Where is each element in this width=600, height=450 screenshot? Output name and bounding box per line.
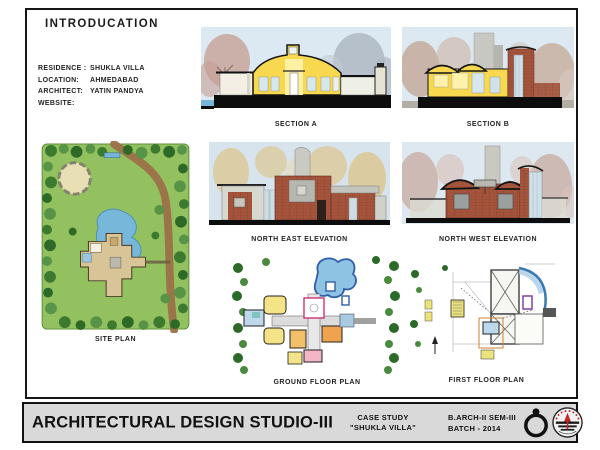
case-study-line1: CASE STUDY — [340, 413, 426, 423]
section-a-drawing — [201, 27, 391, 119]
ground-floor-caption: GROUND FLOOR PLAN — [226, 379, 408, 386]
ground-floor-illustration — [226, 252, 408, 378]
batch-line1: B.ARCH-II SEM-III — [448, 412, 528, 423]
case-study-block: CASE STUDY "SHUKLA VILLA" — [340, 413, 426, 433]
info-row-location: LOCATION: AHMEDABAD — [38, 75, 145, 87]
section-b-illustration — [402, 27, 574, 119]
site-plan-drawing — [38, 141, 193, 333]
lawn-circle — [59, 163, 91, 195]
residence-value: SHUKLA VILLA — [90, 63, 145, 75]
site-plan-illustration — [38, 141, 193, 333]
case-study-line2: "SHUKLA VILLA" — [340, 423, 426, 433]
ne-elevation-illustration — [209, 142, 390, 230]
section-b-drawing — [402, 27, 574, 119]
residence-label: RESIDENCE : — [38, 63, 90, 75]
info-row-website: WEBSITE: — [38, 98, 145, 110]
footer-bar: ARCHITECTURAL DESIGN STUDIO-III CASE STU… — [22, 402, 578, 443]
section-a-illustration — [201, 27, 391, 119]
first-floor-caption: FIRST FLOOR PLAN — [405, 377, 568, 384]
site-plan-caption: SITE PLAN — [38, 336, 193, 343]
entry-water — [104, 153, 120, 158]
info-row-architect: ARCHITECT: YATIN PANDYA — [38, 86, 145, 98]
page-title: INTRODUCATION — [45, 18, 159, 30]
architect-label: ARCHITECT: — [38, 86, 90, 98]
ne-elevation-drawing — [209, 142, 390, 230]
studio-title: ARCHITECTURAL DESIGN STUDIO-III — [32, 413, 333, 432]
nw-elevation-illustration — [402, 142, 574, 232]
first-floor-drawing — [405, 252, 568, 370]
institute-logo-icon — [552, 407, 583, 438]
location-value: AHMEDABAD — [90, 75, 139, 87]
compass-dial-icon — [522, 406, 550, 439]
section-b-caption: SECTION B — [402, 121, 574, 128]
project-info-block: RESIDENCE : SHUKLA VILLA LOCATION: AHMED… — [38, 63, 145, 109]
batch-line2: BATCH - 2014 — [448, 423, 528, 434]
architect-value: YATIN PANDYA — [90, 86, 144, 98]
nw-elevation-drawing — [402, 142, 574, 232]
location-label: LOCATION: — [38, 75, 90, 87]
batch-block: B.ARCH-II SEM-III BATCH - 2014 — [448, 412, 528, 434]
ne-elevation-caption: NORTH EAST ELEVATION — [209, 236, 390, 243]
ground-floor-drawing — [226, 252, 408, 378]
nw-elevation-caption: NORTH WEST ELEVATION — [402, 236, 574, 243]
website-label: WEBSITE: — [38, 98, 90, 110]
first-floor-illustration — [405, 252, 568, 370]
section-a-caption: SECTION A — [201, 121, 391, 128]
info-row-residence: RESIDENCE : SHUKLA VILLA — [38, 63, 145, 75]
